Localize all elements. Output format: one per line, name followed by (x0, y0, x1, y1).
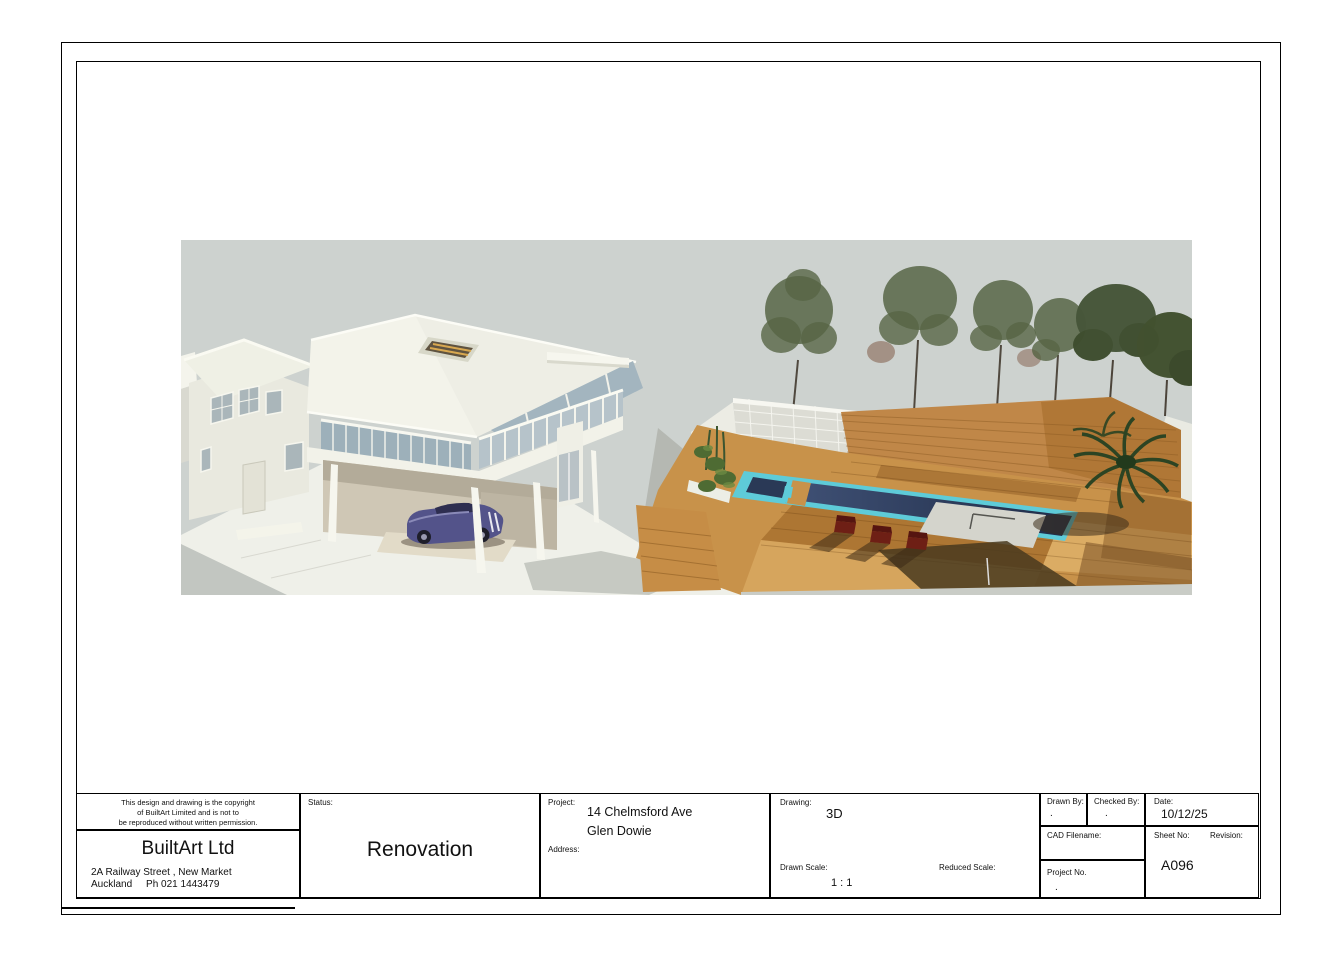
annex (184, 340, 314, 520)
sheet-no-cell: Sheet No: Revision: A096 (1145, 826, 1259, 898)
drawing-sheet: This design and drawing is the copyright… (0, 0, 1340, 959)
date-cell: Date: 10/12/25 (1145, 793, 1259, 826)
company-address-line1: 2A Railway Street , New Market (91, 867, 232, 878)
revision-label: Revision: (1210, 831, 1243, 840)
date-value: 10/12/25 (1161, 807, 1208, 821)
project-cell: Project: 14 Chelmsford Ave Glen Dowie Ad… (540, 793, 770, 898)
render-3d-view (181, 240, 1192, 595)
fold-mark-line (62, 907, 295, 909)
cad-filename-cell: CAD Filename: (1040, 826, 1145, 860)
drawn-scale-label: Drawn Scale: (780, 863, 828, 872)
project-value-line2: Glen Dowie (587, 824, 652, 838)
date-label: Date: (1154, 797, 1173, 806)
company-cell: BuiltArt Ltd 2A Railway Street , New Mar… (76, 830, 300, 898)
drawing-cell: Drawing: 3D Drawn Scale: 1 : 1 Reduced S… (770, 793, 1040, 898)
drawn-scale-value: 1 : 1 (831, 877, 852, 889)
copyright-line: be reproduced without written permission… (77, 818, 299, 828)
drawing-value: 3D (826, 806, 843, 821)
address-label: Address: (548, 845, 580, 854)
project-no-cell: Project No. . (1040, 860, 1145, 898)
checked-by-value: . (1105, 808, 1108, 819)
drawn-by-label: Drawn By: (1047, 797, 1084, 806)
copyright-cell: This design and drawing is the copyright… (76, 793, 300, 830)
status-cell: Status: Renovation (300, 793, 540, 898)
drawn-by-cell: Drawn By: . (1040, 793, 1087, 826)
sheet-no-value: A096 (1161, 857, 1194, 873)
project-label: Project: (548, 798, 575, 807)
status-value: Renovation (301, 838, 539, 862)
checked-by-cell: Checked By: . (1087, 793, 1145, 826)
copyright-line: This design and drawing is the copyright (77, 798, 299, 808)
copyright-line: of BuiltArt Limited and is not to (77, 808, 299, 818)
status-label: Status: (308, 798, 333, 807)
project-no-value: . (1055, 882, 1058, 893)
cad-filename-label: CAD Filename: (1047, 831, 1101, 840)
company-address-line2: Auckland Ph 021 1443479 (91, 879, 219, 890)
drawing-label: Drawing: (780, 798, 812, 807)
reduced-scale-label: Reduced Scale: (939, 863, 995, 872)
drawn-by-value: . (1050, 808, 1053, 819)
company-name: BuiltArt Ltd (77, 838, 299, 860)
project-no-label: Project No. (1047, 868, 1087, 877)
sheet-no-label: Sheet No: (1154, 831, 1190, 840)
project-value-line1: 14 Chelmsford Ave (587, 805, 692, 819)
checked-by-label: Checked By: (1094, 797, 1139, 806)
front-door (243, 461, 265, 514)
